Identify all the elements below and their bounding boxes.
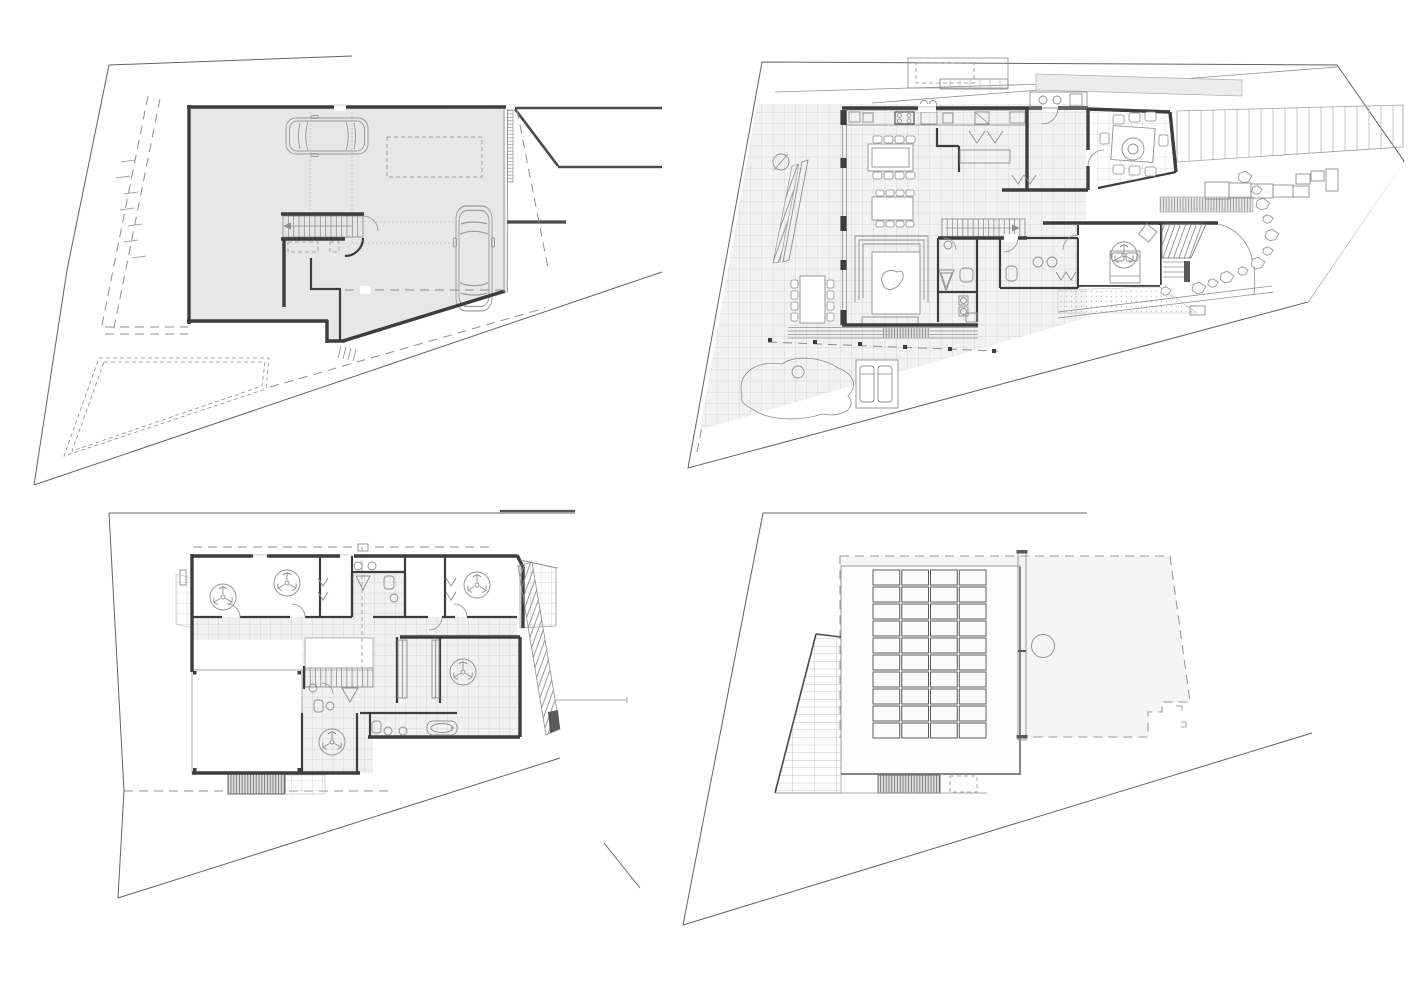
solar-panel bbox=[902, 621, 929, 636]
solar-panel bbox=[873, 638, 900, 653]
solar-panel bbox=[959, 570, 986, 585]
solar-panel bbox=[902, 689, 929, 704]
roof-plan bbox=[683, 513, 1312, 925]
solar-panel bbox=[873, 706, 900, 721]
ceiling-fan-icon bbox=[210, 584, 236, 610]
solar-panel bbox=[902, 570, 929, 585]
rock-icon bbox=[1238, 171, 1252, 183]
solar-panel bbox=[931, 621, 958, 636]
kitchen-island-table bbox=[868, 136, 915, 179]
dining-table bbox=[872, 190, 914, 227]
solar-panel bbox=[873, 672, 900, 687]
dashed-landing bbox=[950, 776, 977, 792]
roof-overhang-band bbox=[1036, 74, 1242, 96]
solar-panel bbox=[902, 655, 929, 670]
solar-panel bbox=[931, 689, 958, 704]
ceiling-fan-icon bbox=[464, 572, 490, 598]
drawing-sheet bbox=[0, 0, 1414, 1000]
solar-panel bbox=[931, 723, 958, 738]
driveway-paver-strip bbox=[1177, 105, 1403, 162]
solar-panel bbox=[959, 604, 986, 619]
solar-panel bbox=[959, 706, 986, 721]
solar-panel bbox=[959, 638, 986, 653]
external-steps-ticks bbox=[338, 346, 356, 361]
solar-panel bbox=[873, 587, 900, 602]
roof-outline-dashed bbox=[193, 544, 492, 551]
solar-panel bbox=[873, 621, 900, 636]
void-over-living bbox=[305, 638, 373, 670]
solar-panel bbox=[902, 587, 929, 602]
solar-panel bbox=[959, 672, 986, 687]
parking-bay-lines bbox=[101, 96, 160, 333]
solar-panel bbox=[931, 672, 958, 687]
solar-panel bbox=[873, 655, 900, 670]
driveway-wedge bbox=[775, 634, 841, 793]
solar-panel bbox=[931, 587, 958, 602]
solar-panel bbox=[902, 672, 929, 687]
sun-loungers bbox=[856, 360, 898, 408]
solar-panel bbox=[902, 638, 929, 653]
solar-panel bbox=[931, 655, 958, 670]
basement-garage-plan bbox=[34, 56, 662, 485]
external-stair-hatch bbox=[228, 774, 285, 794]
solar-panel bbox=[959, 723, 986, 738]
solar-panel bbox=[959, 587, 986, 602]
solar-panel bbox=[902, 723, 929, 738]
solar-panel bbox=[873, 689, 900, 704]
solar-panel bbox=[931, 706, 958, 721]
rock-icon bbox=[1252, 186, 1262, 195]
solar-panel bbox=[873, 723, 900, 738]
timber-deck bbox=[192, 670, 302, 773]
solar-panel bbox=[873, 604, 900, 619]
solar-panel bbox=[959, 655, 986, 670]
deck-stair-hatch bbox=[878, 775, 940, 793]
ceiling-fan-icon bbox=[274, 570, 300, 596]
pool-outline bbox=[64, 358, 269, 456]
solar-panel bbox=[959, 621, 986, 636]
upper-floor-plan bbox=[109, 511, 640, 898]
solar-panel bbox=[902, 604, 929, 619]
solar-panel bbox=[931, 570, 958, 585]
solar-panel bbox=[931, 604, 958, 619]
bed bbox=[1110, 251, 1140, 283]
floor-plans-drawing bbox=[0, 0, 1414, 1000]
ground-floor-plan bbox=[688, 58, 1404, 468]
retaining-wall-hatch bbox=[508, 110, 514, 182]
solar-panel bbox=[931, 638, 958, 653]
street-kerb-lines bbox=[507, 108, 662, 268]
solar-panel bbox=[902, 706, 929, 721]
solar-panel bbox=[959, 689, 986, 704]
solar-panel bbox=[873, 570, 900, 585]
